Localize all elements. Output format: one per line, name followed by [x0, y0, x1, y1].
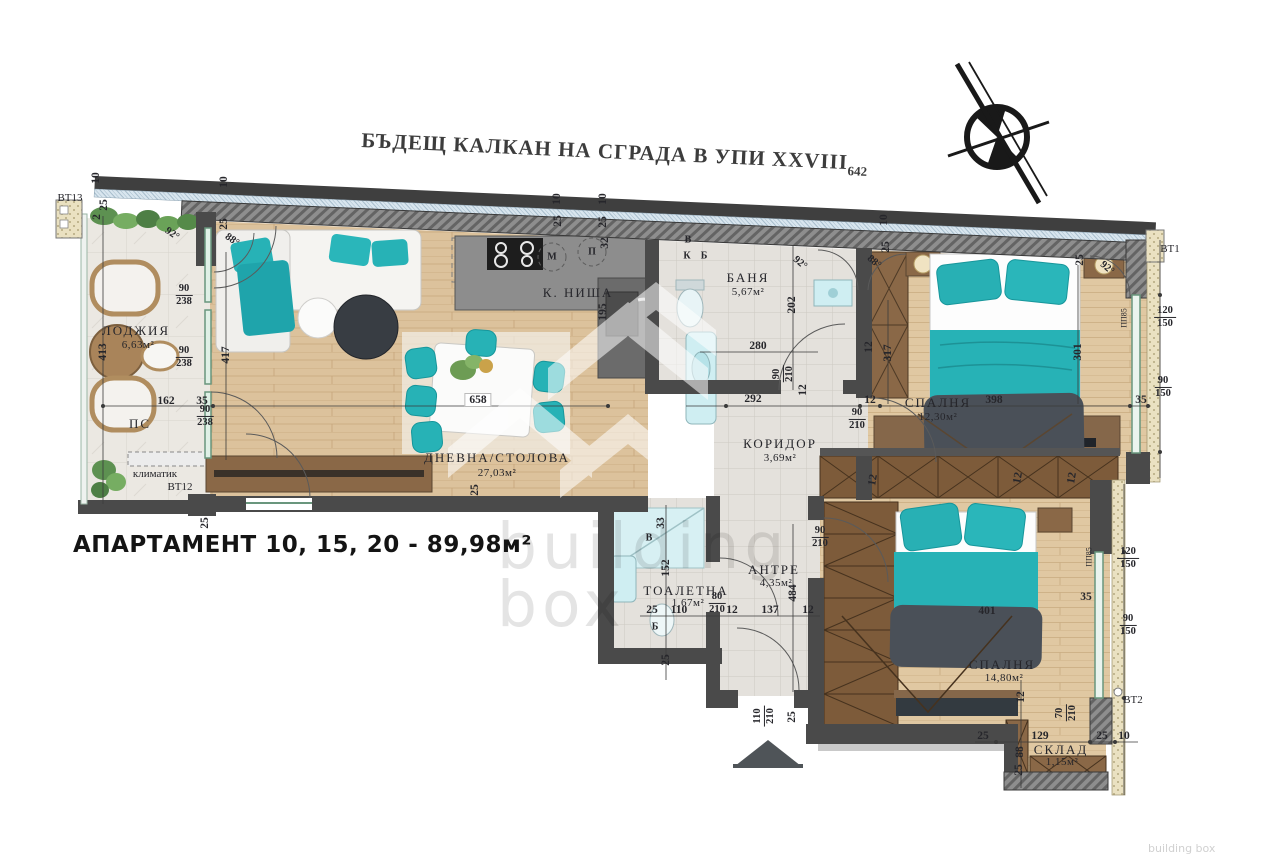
ac-unit	[128, 452, 208, 466]
bedroom1-right-block	[1126, 452, 1150, 484]
pouf	[298, 298, 338, 338]
corridor-bedroom1-wall	[856, 452, 872, 500]
outer-ledge	[818, 744, 1012, 751]
loggia-chair	[92, 262, 158, 314]
loggia-table	[90, 325, 144, 379]
vt13-cell	[60, 220, 68, 228]
sofa-throw	[236, 259, 295, 336]
watermark-logo: building box	[497, 518, 789, 634]
bedroom2-right-corner	[1090, 698, 1112, 744]
watermark-line2: box	[497, 576, 789, 634]
hallway-bedroom2-wall	[808, 496, 824, 520]
pillow	[899, 502, 962, 552]
pillow	[936, 258, 1002, 305]
nightstand	[1038, 508, 1072, 532]
blanket-dark	[889, 605, 1042, 670]
vt1-box	[1146, 230, 1164, 262]
loggia-door-glass	[205, 392, 211, 458]
bedroom2-right-block	[1090, 480, 1112, 554]
entrance-arrow-icon	[733, 740, 803, 768]
floor-plan-drawing	[0, 0, 1261, 858]
wardrobe-strip-wall	[820, 448, 1120, 456]
toilet-bottom-wall	[598, 648, 722, 664]
desk	[894, 690, 1020, 698]
sideboard-shelf	[214, 470, 424, 477]
storage-left-wall	[1004, 724, 1018, 778]
north-arrow-icon	[948, 62, 1049, 203]
floor-plan-page: { "title": {"text": "БЪДЕЩ КАЛКАН НА СГР…	[0, 0, 1261, 858]
storage-bottom-wall	[1004, 772, 1108, 790]
bathroom-bottom-wall	[645, 380, 781, 394]
sofa-pillow	[371, 239, 409, 267]
loggia-side-table	[142, 342, 178, 370]
lamp	[914, 255, 932, 273]
corner-watermark: building box	[1148, 842, 1215, 855]
bedroom2-bottom-wall	[806, 724, 1018, 744]
pillow	[964, 503, 1027, 552]
shower-drain	[828, 288, 838, 298]
bedroom2-window	[1095, 552, 1103, 698]
desk-top	[896, 698, 1018, 716]
loggia-window	[205, 310, 211, 384]
entrance-wall-left	[706, 690, 738, 708]
coffee-table	[334, 295, 398, 359]
apartment-label: АПАРТАМЕНТ 10, 15, 20 - 89,98м²	[73, 532, 532, 558]
outer-strip	[1147, 236, 1160, 482]
loggia-railing	[81, 214, 87, 504]
bedroom1-window	[1132, 295, 1140, 453]
corridor-bedroom1-wall	[856, 388, 872, 398]
outer-strip	[1112, 480, 1125, 795]
bathroom-bedroom1-wall	[856, 248, 872, 394]
stove	[487, 238, 543, 270]
hallway-bedroom2-wall	[808, 578, 824, 728]
vt13-cell	[60, 206, 68, 214]
loggia-window	[205, 228, 211, 302]
loggia-chair	[92, 378, 154, 430]
pillow	[1004, 259, 1070, 305]
floor-plan: БЪДЕЩ КАЛКАН НА СГРАДА В УПИ XXVIII642 А…	[0, 0, 1261, 858]
vt2-mark	[1114, 688, 1122, 696]
plan-title-subscript: 642	[847, 163, 867, 179]
sofa-pillow	[328, 233, 372, 266]
